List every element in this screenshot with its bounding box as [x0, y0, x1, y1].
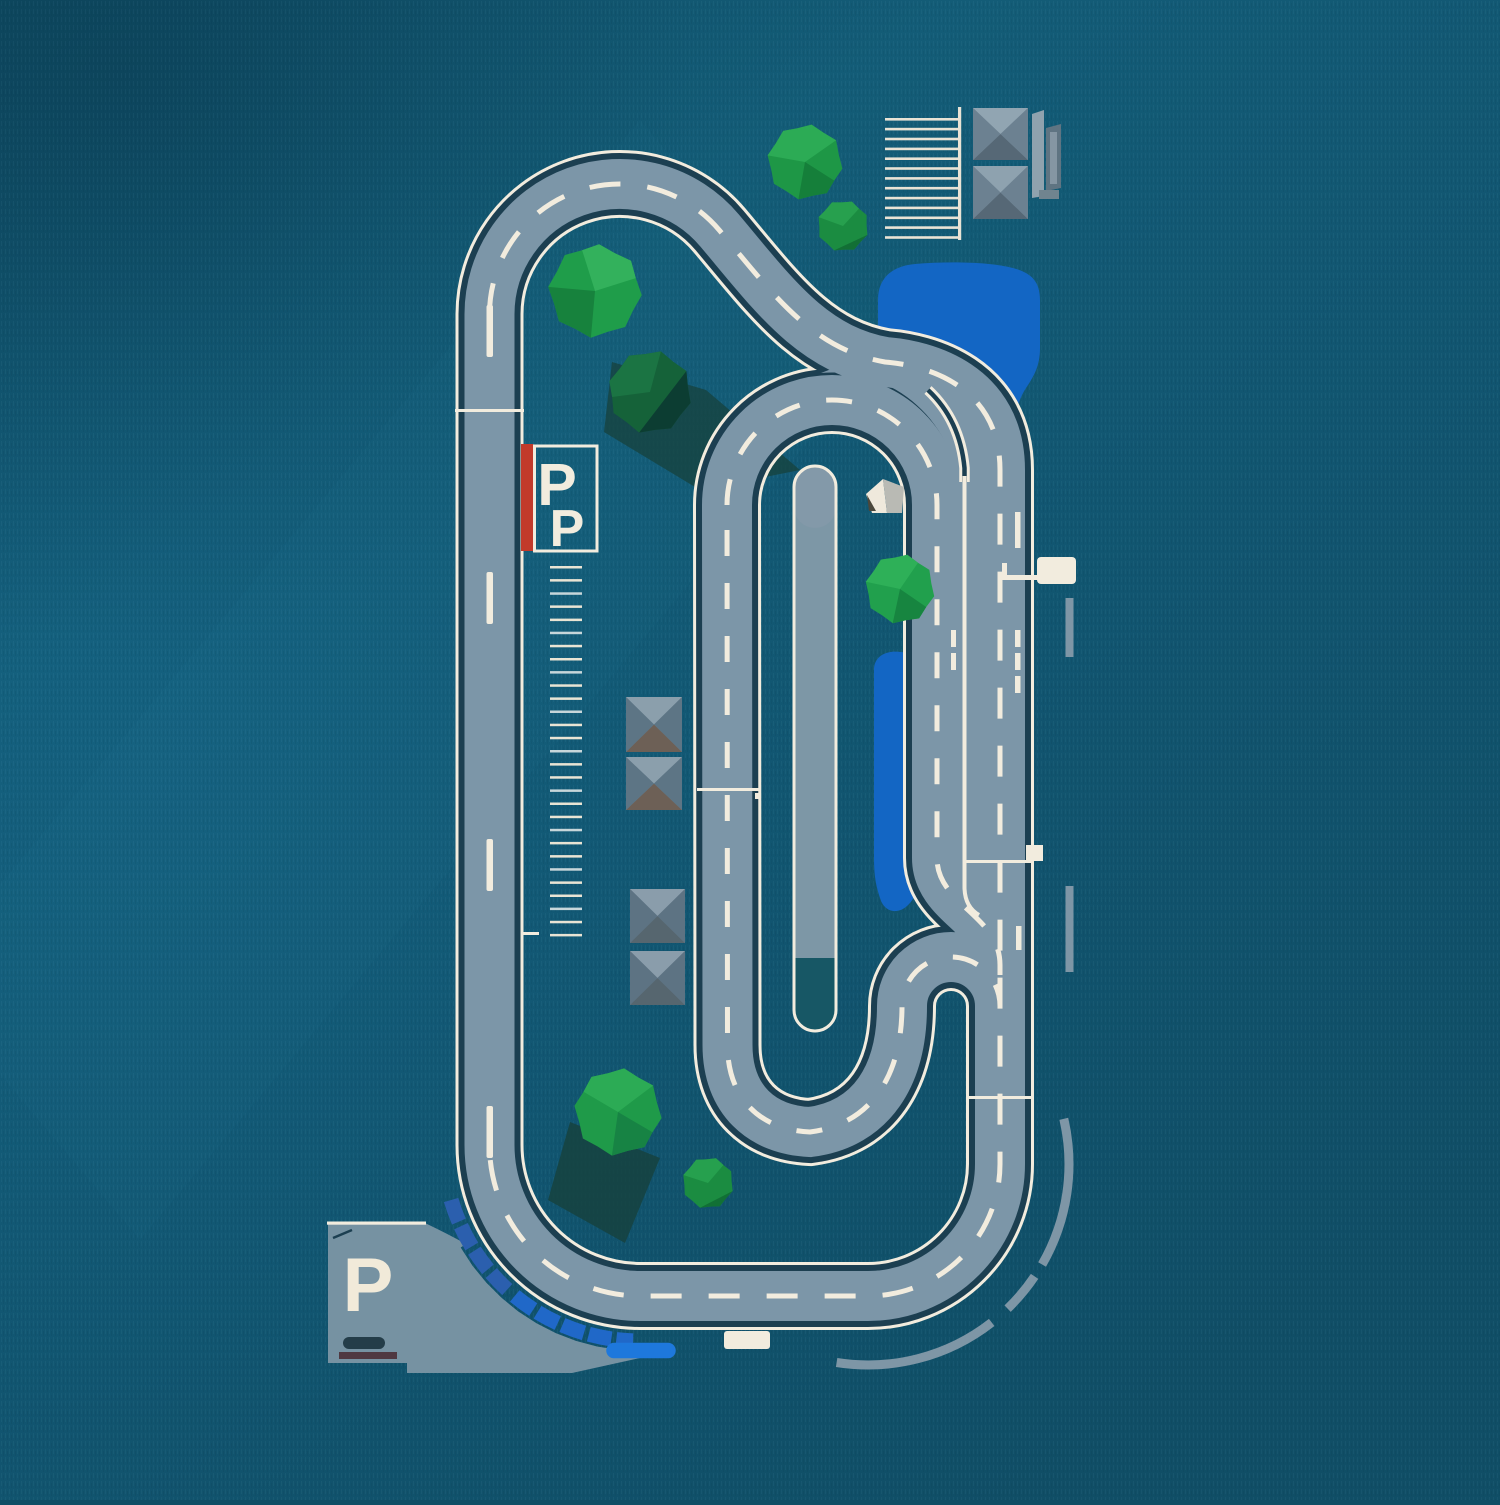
svg-text:P: P [343, 1243, 394, 1328]
svg-text:P: P [550, 500, 585, 558]
